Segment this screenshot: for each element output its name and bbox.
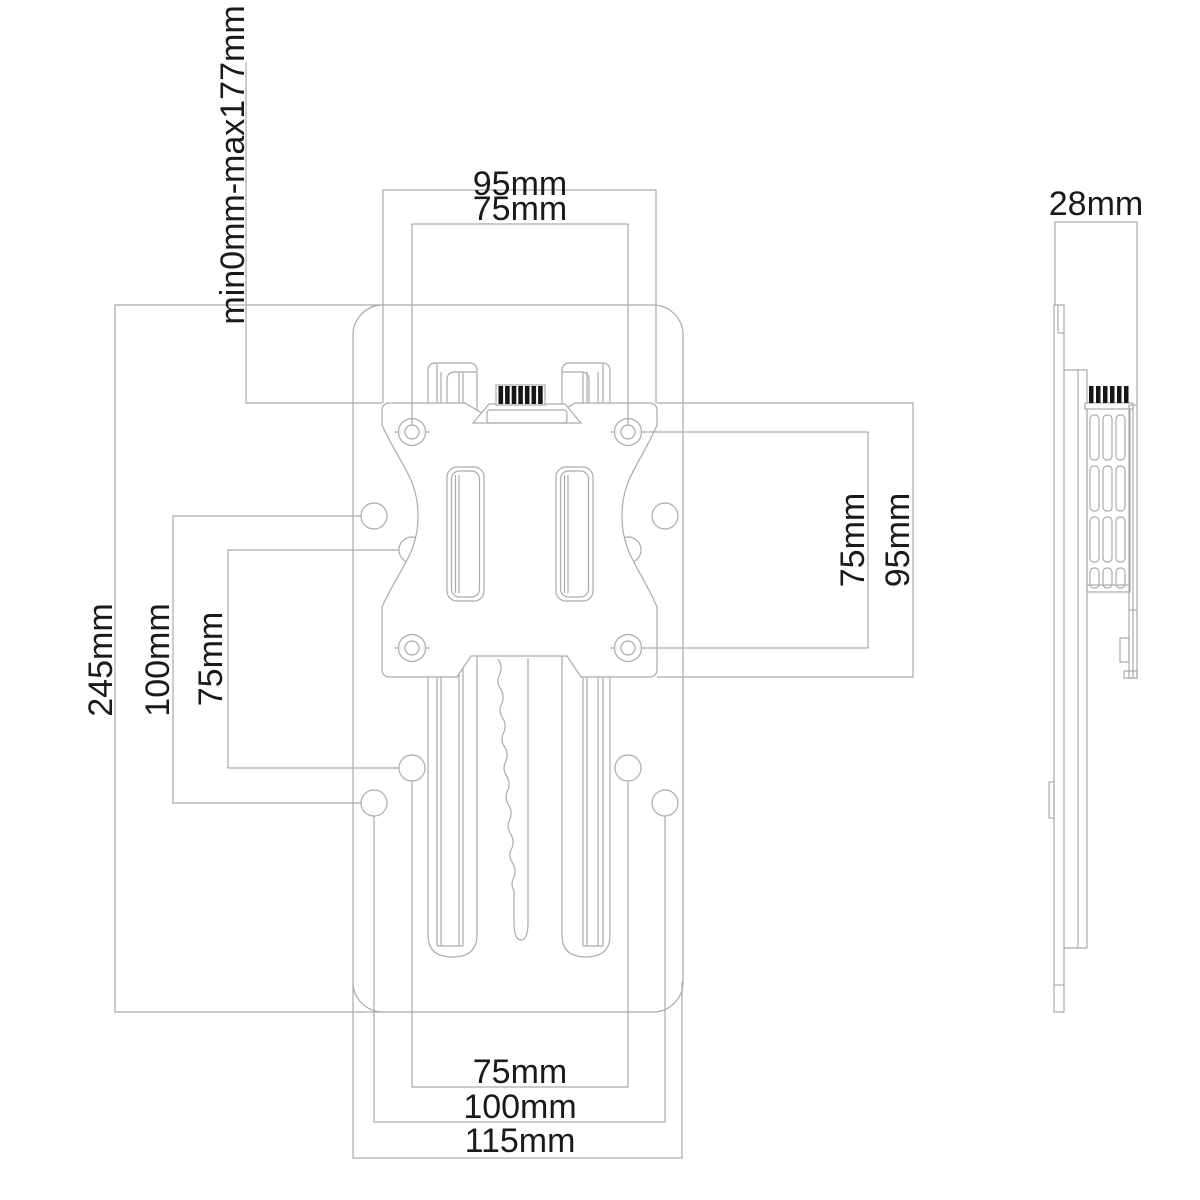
wall-hole-100-br xyxy=(652,790,678,816)
vesa-plate xyxy=(382,403,657,677)
side-wall-plate xyxy=(1049,305,1064,1012)
release-knob xyxy=(496,385,545,405)
release-latch xyxy=(473,404,581,423)
side-rear-plate xyxy=(1120,405,1137,678)
dim-label-right-75: 75mm xyxy=(834,493,872,587)
wall-hole-100-tr xyxy=(652,503,678,529)
dim-label-left-245: 245mm xyxy=(82,603,120,716)
side-carrier xyxy=(1064,370,1087,948)
side-view xyxy=(1049,305,1137,1012)
front-view xyxy=(353,305,683,1012)
side-cassette xyxy=(1087,408,1130,592)
dim-label-top-75: 75mm xyxy=(473,190,567,228)
wall-hole-100-bl xyxy=(361,790,387,816)
wall-hole-75-bl xyxy=(399,755,425,781)
dim-label-left-75: 75mm xyxy=(192,612,230,706)
side-knob xyxy=(1085,386,1133,409)
dim-label-bottom-115: 115mm xyxy=(465,1122,576,1160)
ratchet-channel xyxy=(498,658,528,940)
wall-hole-75-br xyxy=(615,755,641,781)
dim-label-bottom-100: 100mm xyxy=(463,1088,576,1126)
technical-drawing: 95mm 75mm min0mm-max177mm 245mm 100mm 75… xyxy=(0,0,1200,1200)
dim-label-bottom-75: 75mm xyxy=(473,1053,567,1091)
dim-label-left-100: 100mm xyxy=(139,603,177,716)
dim-label-side-28: 28mm xyxy=(1049,185,1143,223)
vesa-plate-outline xyxy=(382,403,657,677)
dim-label-slide-range: min0mm-max177mm xyxy=(214,5,252,324)
wall-hole-100-tl xyxy=(361,503,387,529)
dim-label-right-95: 95mm xyxy=(879,493,917,587)
